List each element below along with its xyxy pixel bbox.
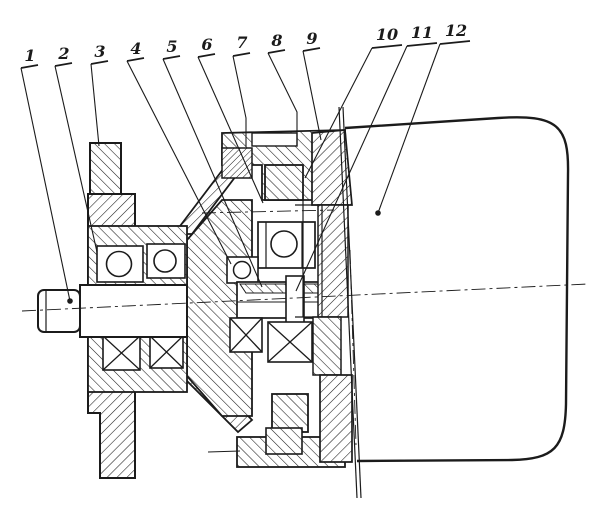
lower-bolt-2 [268,322,312,362]
part-number-6: 6 [201,35,212,54]
part-number-2: 2 [57,44,69,63]
pin-bottom [272,394,308,432]
part-number-1: 1 [24,46,35,65]
input-shaft [80,285,187,337]
input-shaft-end [38,290,80,332]
motor-flange-mid-lower [313,317,341,375]
part-number-7: 7 [236,33,247,52]
motor-flange-bottom [320,375,352,462]
part-number-11: 11 [411,23,433,42]
bearing-ball-2 [154,250,176,272]
lower-bolt-1 [230,318,262,352]
disc-hatch-strip [240,284,328,293]
section-drawing: 123456789101112 [0,0,600,516]
part-number-12: 12 [445,21,467,40]
input-bearing-1-lower [103,336,140,370]
part-number-10: 10 [376,25,398,44]
part-number-5: 5 [166,37,177,56]
part-number-3: 3 [94,42,105,61]
motor-body [345,117,568,461]
leader-dot-12 [375,210,381,216]
bottom-fastener [266,428,302,454]
eccentric-bearing-ball [234,262,251,279]
input-bearing-2-lower [150,336,183,368]
technical-drawing-page: 123456789101112 [0,0,600,516]
housing-top-notch [252,133,297,146]
bracket-top-block [90,143,121,194]
leader-dot-1 [67,298,73,304]
pin-top [265,165,303,200]
part-number-4: 4 [130,39,141,58]
cover-ring [222,148,252,178]
center-bearing-ball [271,231,297,257]
bearing-ball-1 [107,252,132,277]
part-number-9: 9 [306,29,317,48]
machine-section [0,0,600,516]
part-number-8: 8 [270,31,282,50]
